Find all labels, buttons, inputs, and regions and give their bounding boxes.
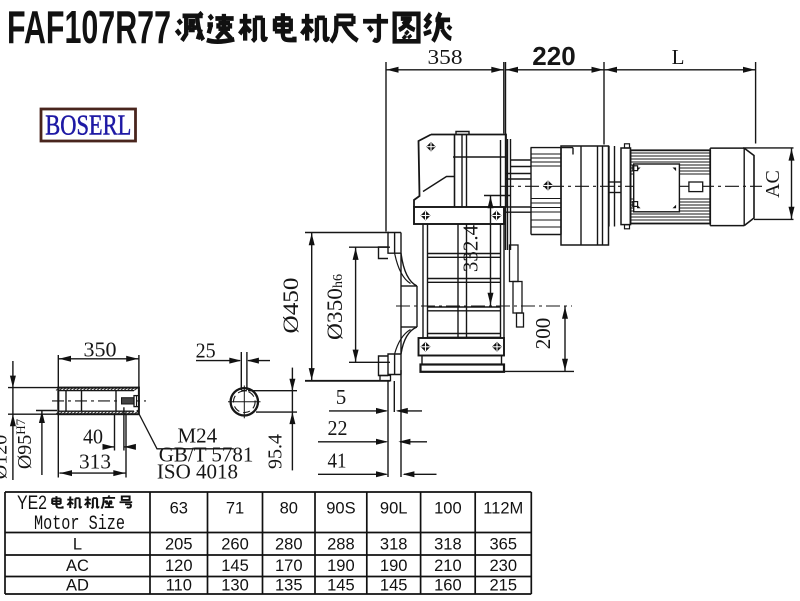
svg-text:L: L (672, 45, 685, 69)
svg-text:120: 120 (165, 557, 193, 575)
svg-text:350: 350 (84, 338, 117, 362)
svg-text:63: 63 (170, 500, 188, 518)
svg-text:80: 80 (280, 500, 298, 518)
svg-text:Motor Size: Motor Size (34, 513, 125, 536)
svg-text:313: 313 (79, 450, 111, 474)
svg-text:145: 145 (221, 557, 249, 575)
svg-text:160: 160 (434, 577, 462, 595)
svg-text:210: 210 (434, 557, 462, 575)
svg-text:135: 135 (275, 577, 303, 595)
svg-text:AC: AC (762, 170, 784, 198)
svg-text:260: 260 (221, 536, 249, 554)
svg-text:Ø120: Ø120 (0, 435, 12, 479)
svg-text:40: 40 (83, 425, 103, 449)
svg-text:220: 220 (532, 41, 575, 71)
svg-text:41: 41 (328, 449, 347, 473)
svg-text:95.4: 95.4 (265, 434, 287, 469)
svg-text:145: 145 (380, 577, 408, 595)
svg-text:110: 110 (166, 577, 192, 595)
svg-text:FAF107R77: FAF107R77 (7, 1, 171, 53)
svg-text:25: 25 (196, 339, 216, 363)
svg-text:280: 280 (275, 536, 303, 554)
svg-text:145: 145 (327, 577, 355, 595)
svg-text:288: 288 (327, 536, 355, 554)
svg-text:90L: 90L (380, 500, 408, 518)
svg-text:AC: AC (66, 557, 89, 575)
svg-text:AD: AD (66, 577, 89, 595)
svg-text:130: 130 (221, 577, 249, 595)
svg-text:215: 215 (489, 577, 517, 595)
svg-text:170: 170 (275, 557, 303, 575)
svg-text:Ø450: Ø450 (278, 278, 303, 334)
svg-text:90S: 90S (326, 500, 355, 518)
svg-text:100: 100 (434, 500, 462, 518)
svg-text:365: 365 (489, 536, 517, 554)
svg-text:318: 318 (434, 536, 462, 554)
svg-text:190: 190 (327, 557, 355, 575)
svg-text:200: 200 (531, 318, 555, 350)
svg-text:BOSERL: BOSERL (45, 111, 131, 142)
svg-text:ISO 4018: ISO 4018 (157, 460, 238, 484)
svg-text:318: 318 (380, 536, 408, 554)
svg-text:YE2: YE2 (17, 493, 47, 514)
svg-text:190: 190 (380, 557, 408, 575)
svg-text:358: 358 (428, 45, 463, 69)
svg-text:22: 22 (328, 416, 348, 440)
svg-text:L: L (73, 536, 82, 554)
svg-text:332.4: 332.4 (459, 224, 483, 272)
svg-text:112M: 112M (483, 500, 523, 518)
svg-text:230: 230 (489, 557, 517, 575)
svg-text:71: 71 (226, 500, 244, 518)
svg-text:5: 5 (336, 385, 347, 409)
svg-text:205: 205 (165, 536, 193, 554)
